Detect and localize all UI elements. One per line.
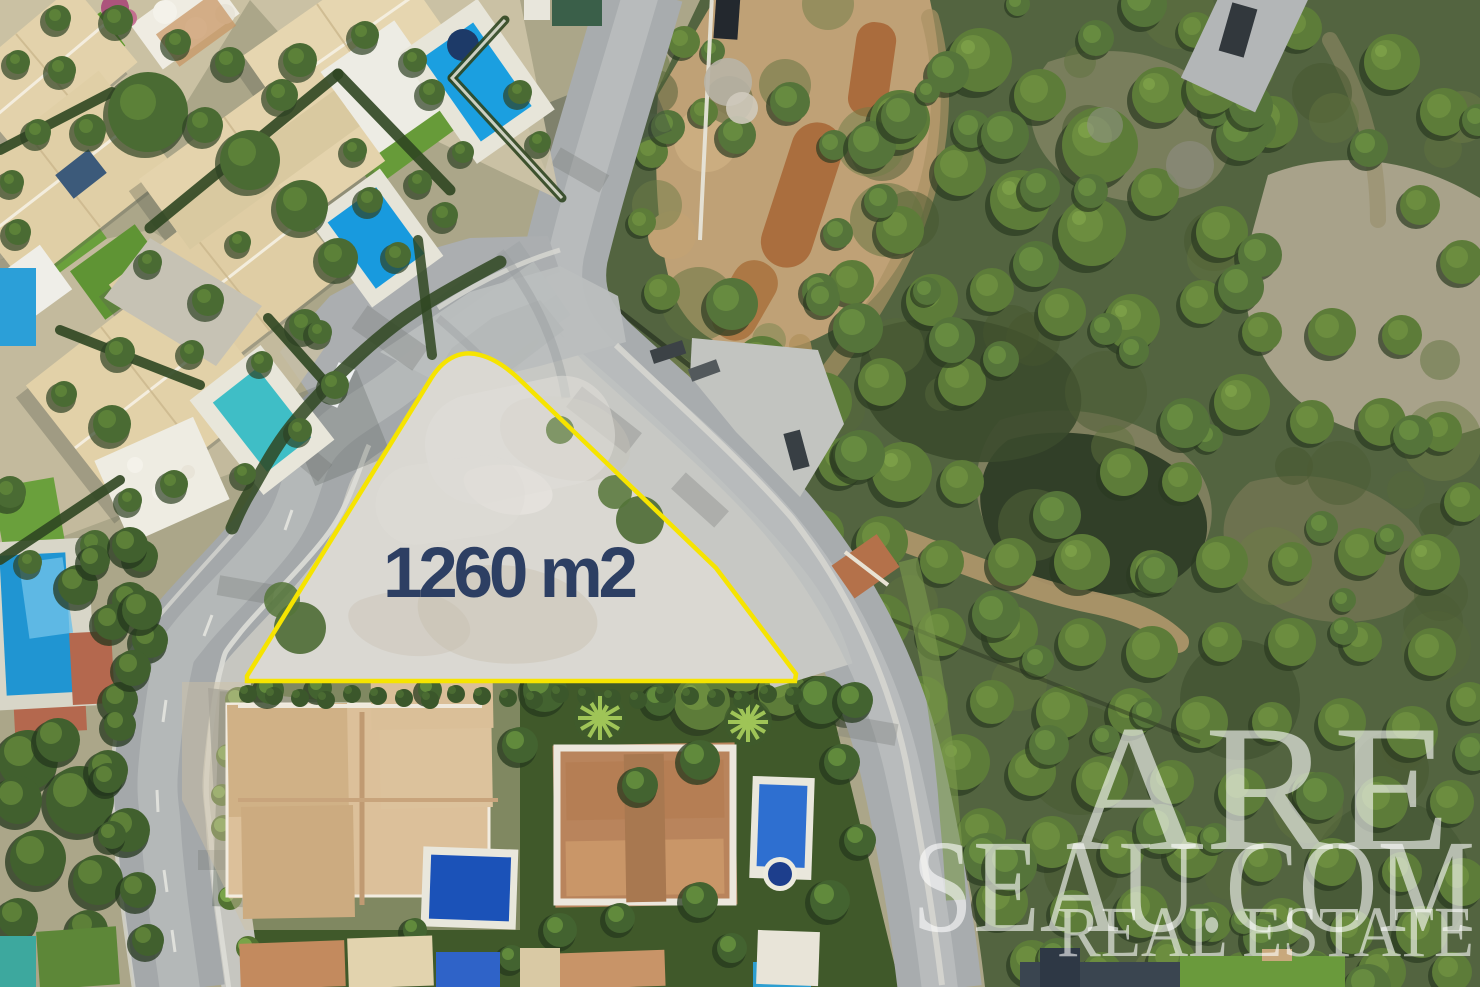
svg-text:REAL ESTATE: REAL ESTATE [1057, 892, 1474, 972]
svg-text:1260 m2: 1260 m2 [383, 534, 638, 613]
